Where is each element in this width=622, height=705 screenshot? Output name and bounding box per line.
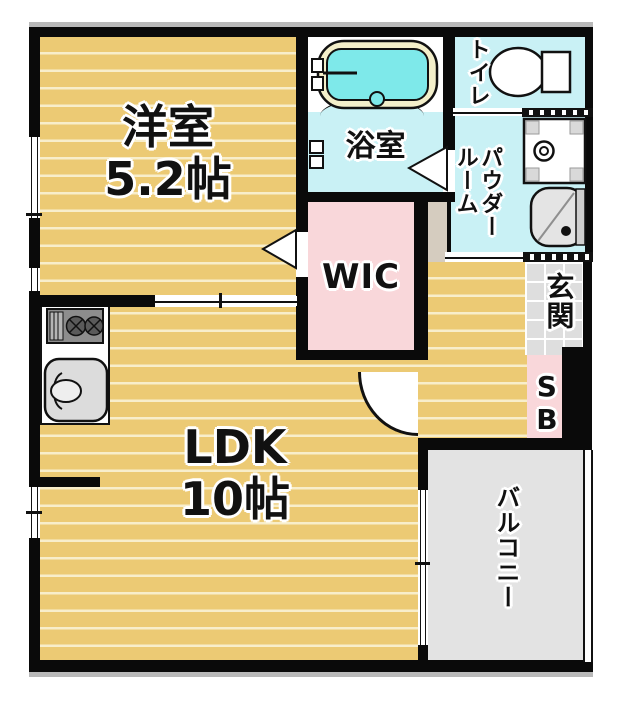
- wall: [414, 192, 428, 360]
- wall: [583, 255, 592, 355]
- powder-room-line1: パウダー: [477, 146, 502, 256]
- wall: [443, 27, 455, 150]
- wall: [29, 660, 593, 672]
- label-entrance: 玄関: [543, 272, 574, 352]
- floor-plan: 洋室 5.2帖 LDK 10帖 浴室 WIC トイレ パウダー ルーム 玄関 S…: [0, 0, 622, 705]
- kitchen-counter: [40, 303, 110, 425]
- wall: [418, 438, 592, 450]
- window: [29, 268, 40, 291]
- powder-room-line2: ルーム: [452, 146, 477, 256]
- shadow-bottom: [29, 672, 593, 677]
- wall: [447, 202, 451, 254]
- wall: [29, 27, 40, 137]
- hatched-wall: [522, 108, 593, 117]
- western-room-name: 洋室: [40, 102, 296, 154]
- wall: [562, 347, 592, 450]
- ldk-name: LDK: [40, 422, 430, 474]
- entrance-door: [523, 252, 593, 262]
- label-wic: WIC: [308, 258, 414, 296]
- sliding-door: [155, 296, 297, 306]
- label-balcony: バルコニー: [492, 485, 519, 625]
- balcony-railing: [583, 450, 593, 662]
- wall: [29, 27, 593, 37]
- label-toilet: トイレ: [464, 38, 489, 110]
- window: [29, 137, 40, 218]
- western-room-area: 5.2帖: [40, 154, 296, 206]
- wall: [585, 27, 593, 262]
- door-opening: [296, 232, 308, 277]
- label-shoebox: SB: [531, 370, 562, 440]
- label-western-room: 洋室 5.2帖: [40, 102, 296, 205]
- label-ldk: LDK 10帖: [40, 422, 430, 525]
- window-tick: [415, 562, 430, 565]
- ldk-area: 10帖: [40, 474, 430, 526]
- wall: [29, 218, 40, 268]
- wall: [29, 291, 40, 487]
- label-powder-room: パウダー ルーム: [452, 146, 501, 256]
- wall: [418, 645, 428, 662]
- wall: [296, 192, 455, 202]
- window-tick: [26, 213, 42, 216]
- wall: [296, 350, 428, 360]
- label-bathroom: 浴室: [308, 130, 443, 164]
- wall: [29, 538, 40, 672]
- wall: [29, 295, 155, 307]
- door-tick: [219, 293, 222, 308]
- wall: [296, 277, 308, 360]
